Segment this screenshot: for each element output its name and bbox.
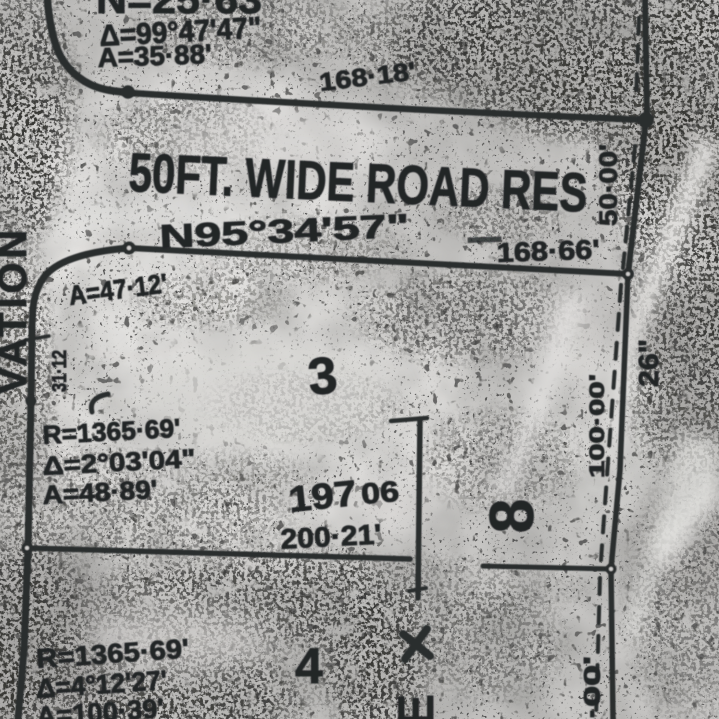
svg-text:8: 8 <box>478 499 547 533</box>
svg-text:A=48·89': A=48·89' <box>42 474 158 510</box>
svg-text:E: E <box>388 694 444 719</box>
svg-text:4: 4 <box>295 638 323 694</box>
svg-text:31·12: 31·12 <box>49 350 71 392</box>
svg-text:A=35·88': A=35·88' <box>97 39 212 73</box>
svg-text:VATION: VATION <box>0 226 35 394</box>
svg-text:100·00': 100·00' <box>586 374 609 478</box>
svg-text:50·00': 50·00' <box>595 144 623 226</box>
svg-text:06: 06 <box>360 476 401 511</box>
svg-text:26": 26" <box>633 339 664 387</box>
svg-text:197: 197 <box>287 472 359 520</box>
svg-text:3: 3 <box>305 346 340 407</box>
svg-text:168·66': 168·66' <box>496 234 600 268</box>
svg-text:100·00': 100·00' <box>579 656 605 719</box>
svg-text:200·21': 200·21' <box>280 518 382 554</box>
